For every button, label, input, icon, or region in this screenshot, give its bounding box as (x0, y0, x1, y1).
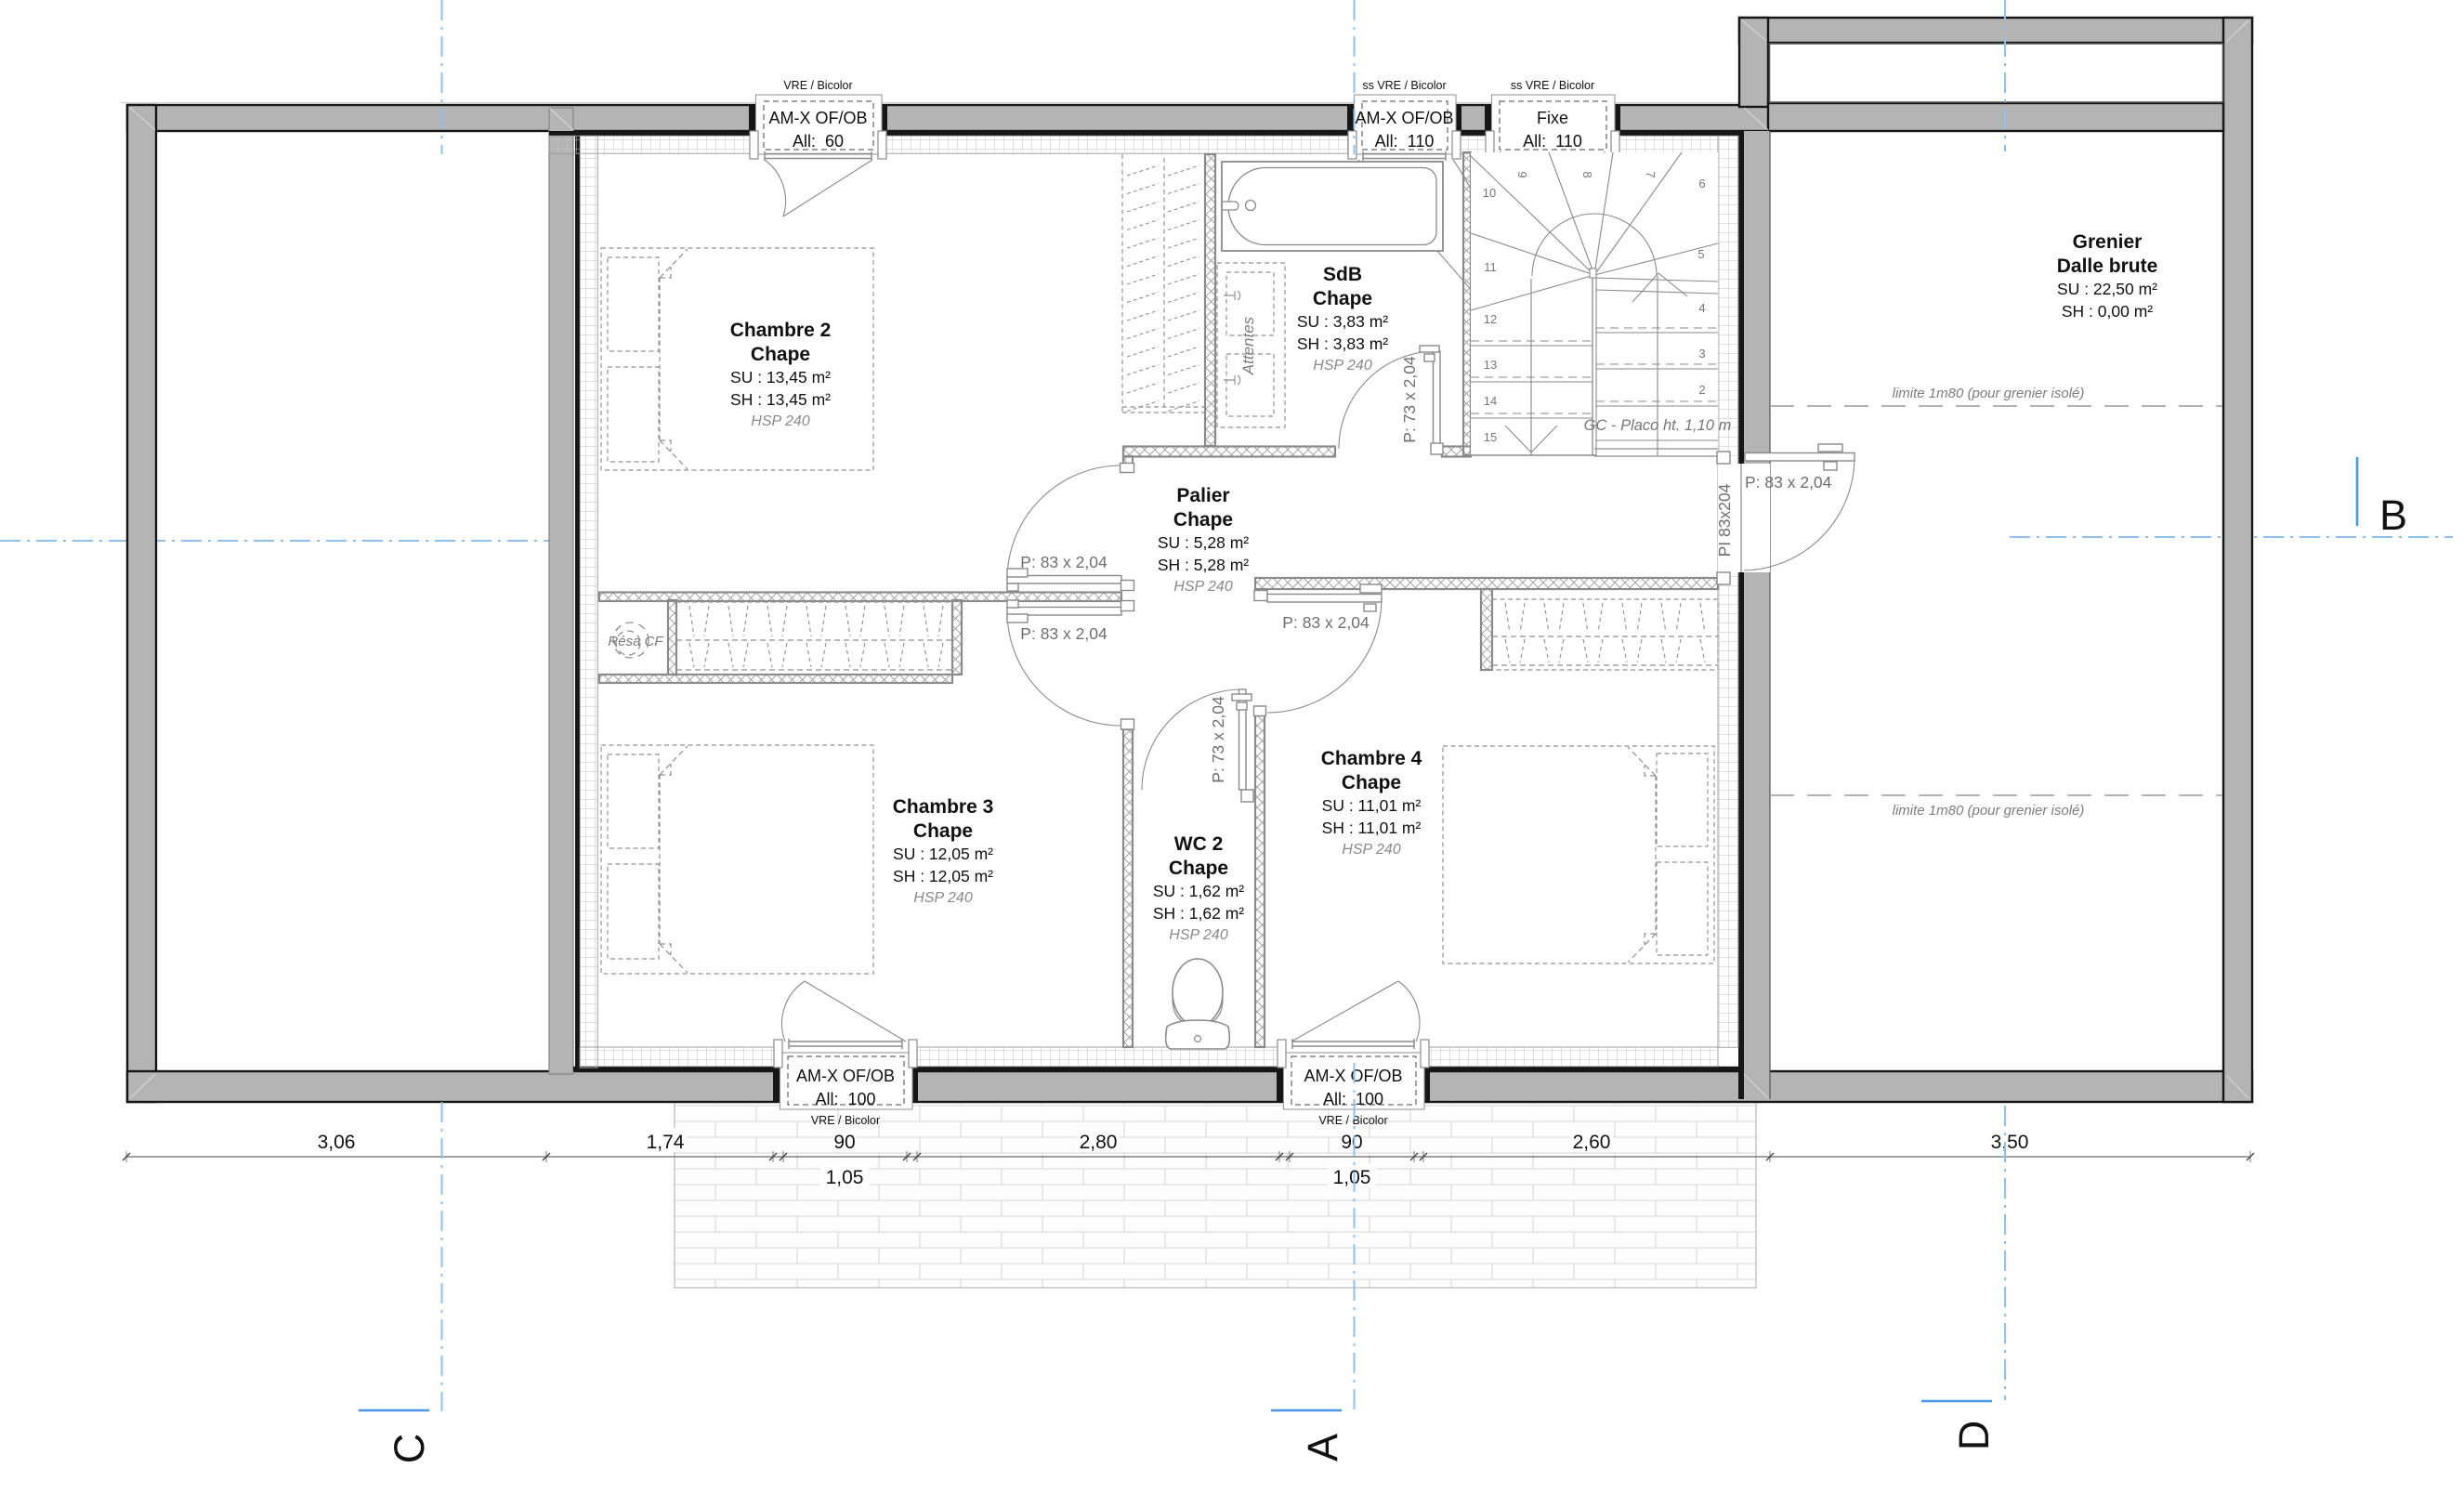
svg-text:C: C (386, 1434, 433, 1464)
svg-text:Résa CF: Résa CF (608, 634, 663, 649)
svg-text:Dalle brute: Dalle brute (2057, 256, 2158, 277)
svg-text:SH : 13,45 m²: SH : 13,45 m² (730, 390, 831, 409)
svg-text:2,60: 2,60 (1573, 1132, 1611, 1153)
svg-text:2,80: 2,80 (1080, 1132, 1118, 1153)
svg-text:Grenier: Grenier (2073, 231, 2143, 253)
svg-text:ss VRE / Bicolor: ss VRE / Bicolor (1511, 79, 1594, 92)
svg-text:ss VRE / Bicolor: ss VRE / Bicolor (1362, 79, 1446, 92)
svg-text:8: 8 (1580, 171, 1594, 177)
svg-text:4: 4 (1698, 301, 1705, 315)
svg-text:10: 10 (1483, 186, 1496, 200)
svg-text:P: 83 x 2,04: P: 83 x 2,04 (1282, 613, 1370, 632)
svg-text:HSP 240: HSP 240 (1169, 927, 1228, 943)
svg-text:SdB: SdB (1323, 264, 1362, 285)
svg-text:VRE / Bicolor: VRE / Bicolor (811, 1114, 880, 1127)
svg-text:P: 83 x 2,04: P: 83 x 2,04 (1020, 553, 1107, 571)
svg-text:P: 83 x 2,04: P: 83 x 2,04 (1745, 473, 1832, 491)
svg-text:limite 1m80 (pour grenier isol: limite 1m80 (pour grenier isolé) (1893, 386, 2085, 401)
svg-text:AM-X OF/OB: AM-X OF/OB (796, 1067, 895, 1085)
svg-text:WC 2: WC 2 (1174, 833, 1224, 855)
svg-text:SU : 1,62 m²: SU : 1,62 m² (1153, 882, 1244, 900)
svg-text:All: 110: All: 110 (1523, 132, 1582, 151)
svg-text:SH : 3,83 m²: SH : 3,83 m² (1297, 334, 1388, 353)
svg-text:SU : 5,28 m²: SU : 5,28 m² (1158, 533, 1249, 552)
svg-text:11: 11 (1484, 260, 1497, 274)
svg-text:3: 3 (1698, 347, 1705, 360)
svg-text:VRE / Bicolor: VRE / Bicolor (783, 79, 852, 92)
svg-text:14: 14 (1484, 394, 1497, 408)
svg-text:6: 6 (1698, 177, 1705, 190)
svg-text:13: 13 (1484, 358, 1497, 372)
svg-text:P: 73 x 2,04: P: 73 x 2,04 (1400, 356, 1419, 443)
svg-text:GC - Placo ht. 1,10 m: GC - Placo ht. 1,10 m (1584, 417, 1732, 434)
svg-text:HSP 240: HSP 240 (751, 413, 810, 429)
svg-text:AM-X OF/OB: AM-X OF/OB (1355, 109, 1453, 127)
svg-text:HSP 240: HSP 240 (1173, 579, 1233, 595)
svg-text:Chape: Chape (1342, 772, 1401, 793)
svg-text:All: 110: All: 110 (1375, 132, 1435, 151)
svg-text:P: 83 x 2,04: P: 83 x 2,04 (1020, 624, 1107, 643)
svg-text:SU : 3,83 m²: SU : 3,83 m² (1297, 312, 1388, 331)
svg-text:PI 83x204: PI 83x204 (1715, 483, 1734, 557)
svg-text:SH : 1,62 m²: SH : 1,62 m² (1153, 904, 1244, 923)
svg-text:All: 100: All: 100 (815, 1090, 875, 1108)
svg-text:Attentes: Attentes (1239, 316, 1257, 375)
svg-text:Chape: Chape (1173, 509, 1233, 531)
svg-text:limite 1m80 (pour grenier isol: limite 1m80 (pour grenier isolé) (1893, 803, 2085, 819)
svg-text:7: 7 (1644, 171, 1658, 177)
svg-text:SU : 13,45 m²: SU : 13,45 m² (730, 368, 831, 387)
svg-text:SU : 12,05 m²: SU : 12,05 m² (893, 845, 993, 863)
svg-text:Chambre 3: Chambre 3 (893, 796, 994, 818)
svg-text:90: 90 (1341, 1132, 1362, 1153)
svg-text:HSP 240: HSP 240 (913, 890, 973, 906)
svg-text:Fixe: Fixe (1537, 109, 1568, 127)
svg-text:SH : 5,28 m²: SH : 5,28 m² (1158, 556, 1249, 574)
svg-text:P: 73 x 2,04: P: 73 x 2,04 (1209, 696, 1227, 783)
svg-text:1,74: 1,74 (647, 1132, 685, 1153)
svg-text:Chape: Chape (913, 820, 973, 842)
svg-text:HSP 240: HSP 240 (1313, 358, 1372, 373)
svg-text:SH : 0,00 m²: SH : 0,00 m² (2062, 302, 2153, 321)
svg-text:15: 15 (1484, 430, 1497, 444)
svg-text:Chambre 4: Chambre 4 (1321, 748, 1422, 769)
svg-text:B: B (2379, 491, 2407, 539)
svg-text:1,05: 1,05 (826, 1167, 864, 1188)
svg-text:Chambre 2: Chambre 2 (730, 320, 832, 341)
svg-text:90: 90 (833, 1132, 855, 1153)
svg-text:SU : 11,01 m²: SU : 11,01 m² (1322, 796, 1422, 815)
svg-text:SH : 11,01 m²: SH : 11,01 m² (1322, 819, 1422, 837)
svg-text:Chape: Chape (1169, 858, 1228, 879)
svg-text:Palier: Palier (1176, 485, 1229, 506)
svg-text:Chape: Chape (751, 344, 810, 365)
svg-text:3,06: 3,06 (318, 1132, 356, 1153)
svg-text:A: A (1299, 1434, 1346, 1461)
svg-text:D: D (1950, 1421, 1998, 1451)
svg-text:1,05: 1,05 (1333, 1167, 1371, 1188)
svg-text:Chape: Chape (1313, 288, 1372, 309)
svg-text:9: 9 (1515, 171, 1529, 177)
svg-text:3,50: 3,50 (1991, 1132, 2029, 1153)
svg-text:12: 12 (1484, 312, 1497, 326)
svg-text:SH : 12,05 m²: SH : 12,05 m² (893, 867, 993, 885)
svg-text:2: 2 (1698, 383, 1705, 397)
svg-text:AM-X OF/OB: AM-X OF/OB (768, 109, 867, 127)
svg-text:SU : 22,50 m²: SU : 22,50 m² (2057, 280, 2157, 298)
svg-text:HSP 240: HSP 240 (1342, 842, 1401, 858)
svg-text:5: 5 (1697, 247, 1704, 261)
svg-text:All: 60: All: 60 (793, 132, 844, 151)
